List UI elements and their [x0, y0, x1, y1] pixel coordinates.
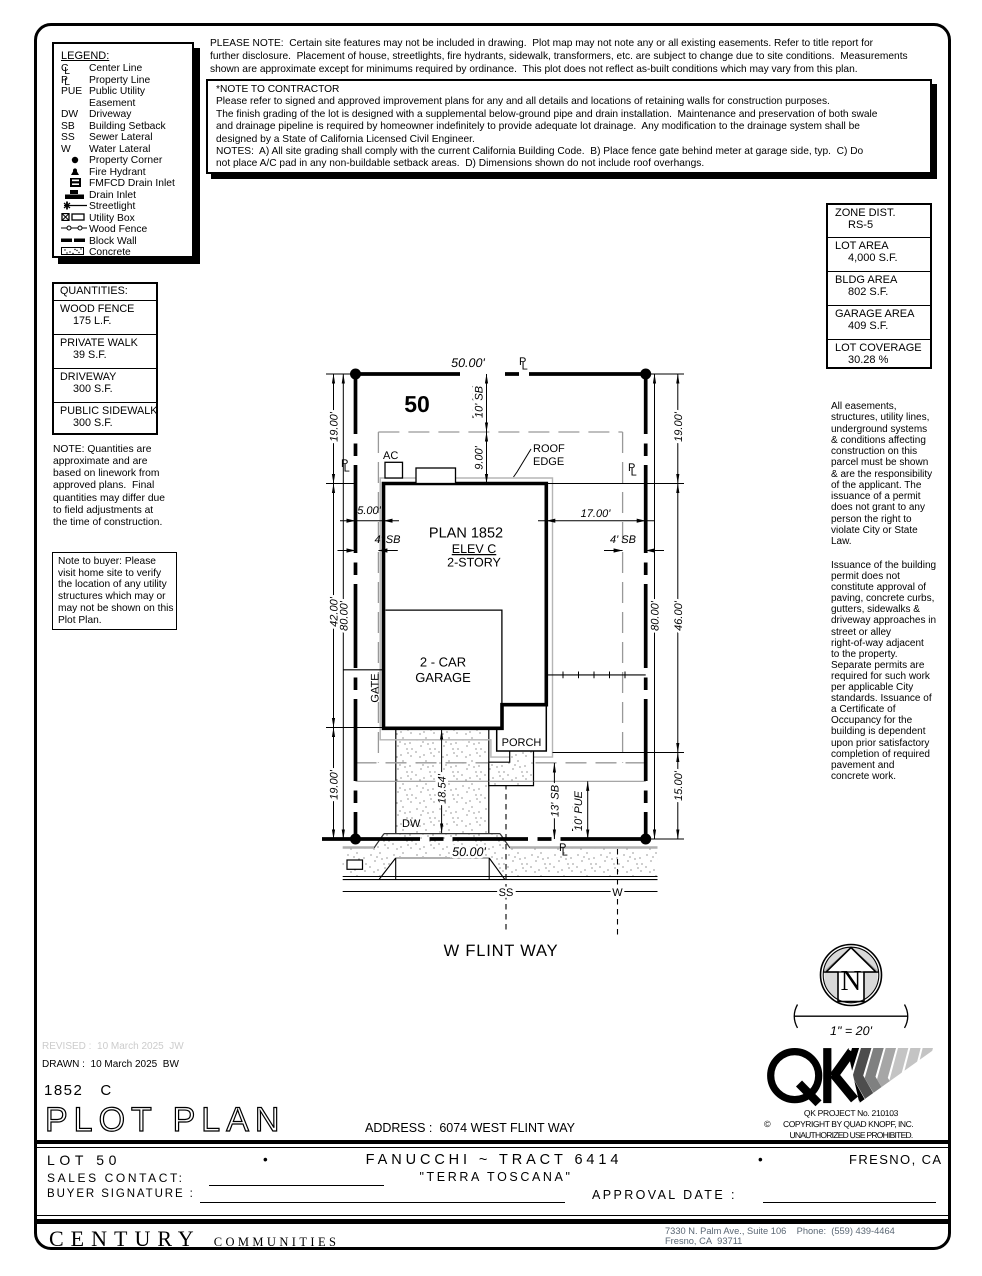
- svg-text:QK PROJECT No. 210103: QK PROJECT No. 210103: [804, 1108, 899, 1118]
- svg-text:17.00': 17.00': [581, 508, 612, 520]
- svg-text:©: ©: [764, 1119, 771, 1129]
- svg-text:80.00': 80.00': [338, 600, 350, 631]
- svg-text:46.00': 46.00': [673, 600, 685, 631]
- svg-text:2-STORY: 2-STORY: [447, 556, 501, 570]
- svg-text:13' SB: 13' SB: [549, 785, 561, 817]
- svg-text:SS: SS: [499, 887, 514, 899]
- svg-text:ELEV C: ELEV C: [452, 542, 496, 556]
- svg-text:80.00': 80.00': [650, 600, 662, 631]
- svg-text:ROOF: ROOF: [533, 443, 565, 455]
- svg-text:DW: DW: [402, 818, 421, 830]
- svg-text:5.00': 5.00': [357, 505, 381, 517]
- svg-text:4' SB: 4' SB: [610, 534, 636, 546]
- svg-text:10' PUE: 10' PUE: [573, 790, 585, 831]
- svg-text:EDGE: EDGE: [533, 456, 564, 468]
- svg-text:N: N: [841, 965, 862, 997]
- svg-text:19.00': 19.00': [329, 411, 341, 442]
- svg-text:W FLINT WAY: W FLINT WAY: [444, 942, 559, 960]
- svg-text:UNAUTHORIZED USE PROHIBITED.: UNAUTHORIZED USE PROHIBITED.: [789, 1130, 912, 1140]
- svg-text:19.00': 19.00': [673, 411, 685, 442]
- svg-text:PLAN 1852: PLAN 1852: [429, 526, 503, 542]
- svg-text:1" = 20': 1" = 20': [830, 1024, 873, 1038]
- svg-text:9.00': 9.00': [474, 445, 486, 469]
- svg-text:4' SB: 4' SB: [375, 534, 401, 546]
- svg-text:50.00': 50.00': [451, 356, 485, 370]
- svg-text:GATE: GATE: [370, 673, 382, 702]
- svg-text:50: 50: [404, 391, 430, 417]
- svg-text:50.00': 50.00': [452, 845, 486, 859]
- svg-text:15.00': 15.00': [673, 770, 685, 801]
- svg-text:W: W: [612, 887, 623, 899]
- svg-text:10' SB: 10' SB: [474, 386, 486, 418]
- svg-text:GARAGE: GARAGE: [415, 670, 471, 685]
- svg-text:AC: AC: [383, 450, 398, 462]
- svg-text:COPYRIGHT BY QUAD KNOPF, INC.: COPYRIGHT BY QUAD KNOPF, INC.: [783, 1119, 913, 1129]
- svg-text:2 - CAR: 2 - CAR: [420, 655, 466, 670]
- svg-text:19.00': 19.00': [329, 769, 341, 800]
- svg-text:18.54': 18.54': [437, 773, 449, 804]
- svg-text:PORCH: PORCH: [502, 737, 542, 749]
